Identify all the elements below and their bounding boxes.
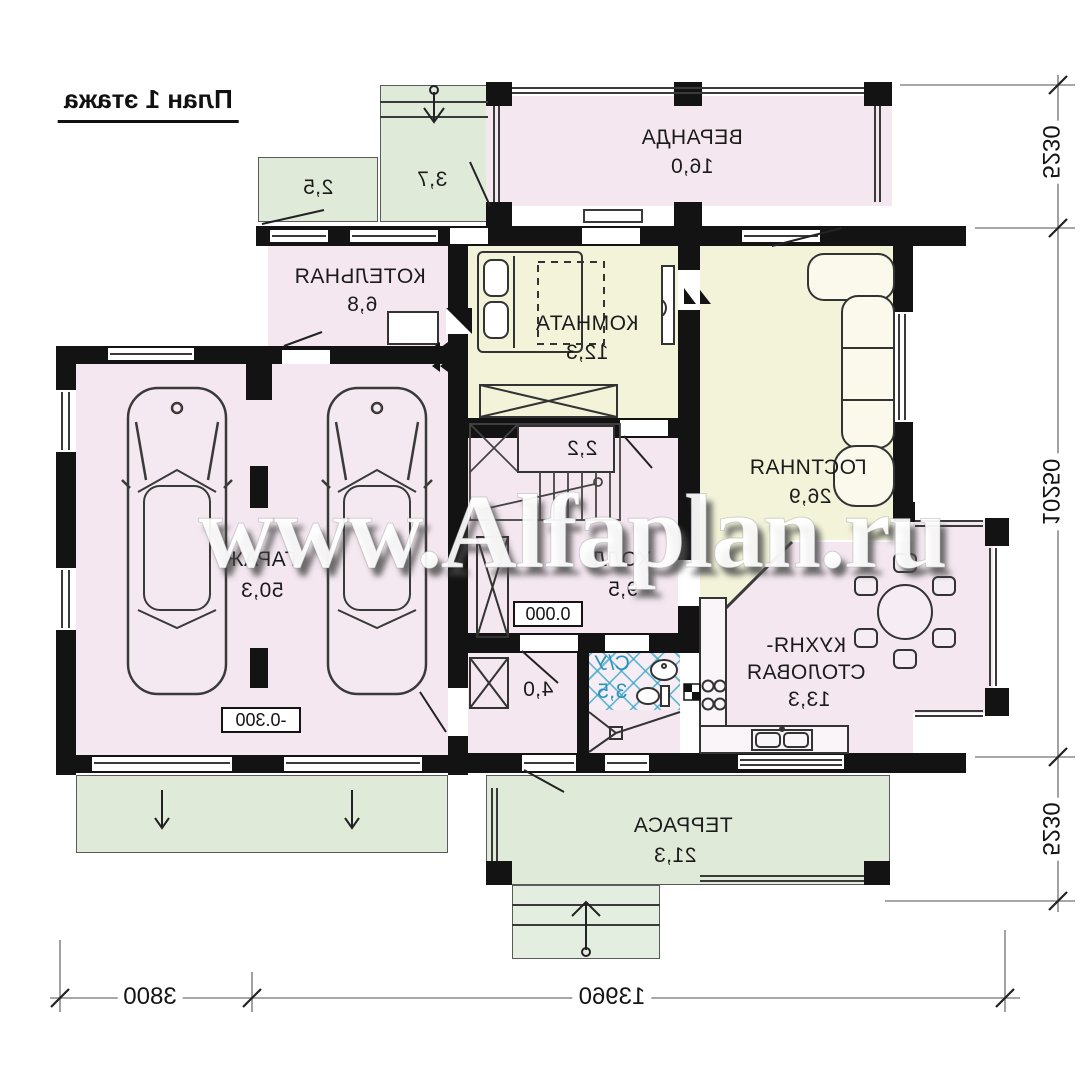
- terrace-label: ТЕРРАСА: [633, 814, 732, 838]
- kitchen-label-line2: СТОЛОВАЯ: [746, 661, 865, 685]
- dim-right-top: 5230: [1036, 120, 1064, 183]
- wc-label: С/У: [594, 652, 630, 676]
- porch-left-area: 2,5: [303, 176, 334, 200]
- wc-area: 3,5: [597, 680, 628, 704]
- dim-right-middle: 10250: [1036, 454, 1064, 531]
- stairs-area: 2,2: [567, 437, 598, 461]
- level-mark-hall: 0.000: [513, 601, 583, 627]
- level-mark-garage: -0.300: [221, 707, 301, 733]
- boiler-area: 6,8: [347, 293, 378, 317]
- terrace-area: 21,3: [654, 844, 697, 868]
- porch-entry-area: 3,7: [417, 168, 448, 192]
- dim-bottom-left: 3800: [117, 983, 182, 1011]
- dim-right-bottom: 5230: [1036, 797, 1064, 860]
- veranda-area: 16,0: [671, 155, 714, 179]
- floor-plan-canvas: План 1 этажа ВЕРАНДА 16,0 2,5 3,7 КОТЕЛЬ…: [0, 0, 1080, 1080]
- boiler-label: КОТЕЛЬНАЯ: [294, 265, 426, 289]
- bedroom-wardrobe: [480, 385, 617, 417]
- bedroom-area: 12,3: [566, 341, 609, 365]
- kitchen-label-line1: КУХНЯ-: [766, 634, 846, 658]
- kitchen-area: 13,3: [788, 688, 831, 712]
- vestibule-area: 4,0: [523, 678, 554, 702]
- dim-bottom-right: 13960: [573, 983, 652, 1011]
- veranda-label: ВЕРАНДА: [641, 126, 743, 150]
- plan-title: План 1 этажа: [58, 84, 239, 123]
- bedroom-label: КОМНАТА: [536, 312, 639, 336]
- boiler-unit: [388, 312, 438, 344]
- watermark: www.Alfaplan.ru: [198, 471, 945, 593]
- bed: [478, 252, 674, 352]
